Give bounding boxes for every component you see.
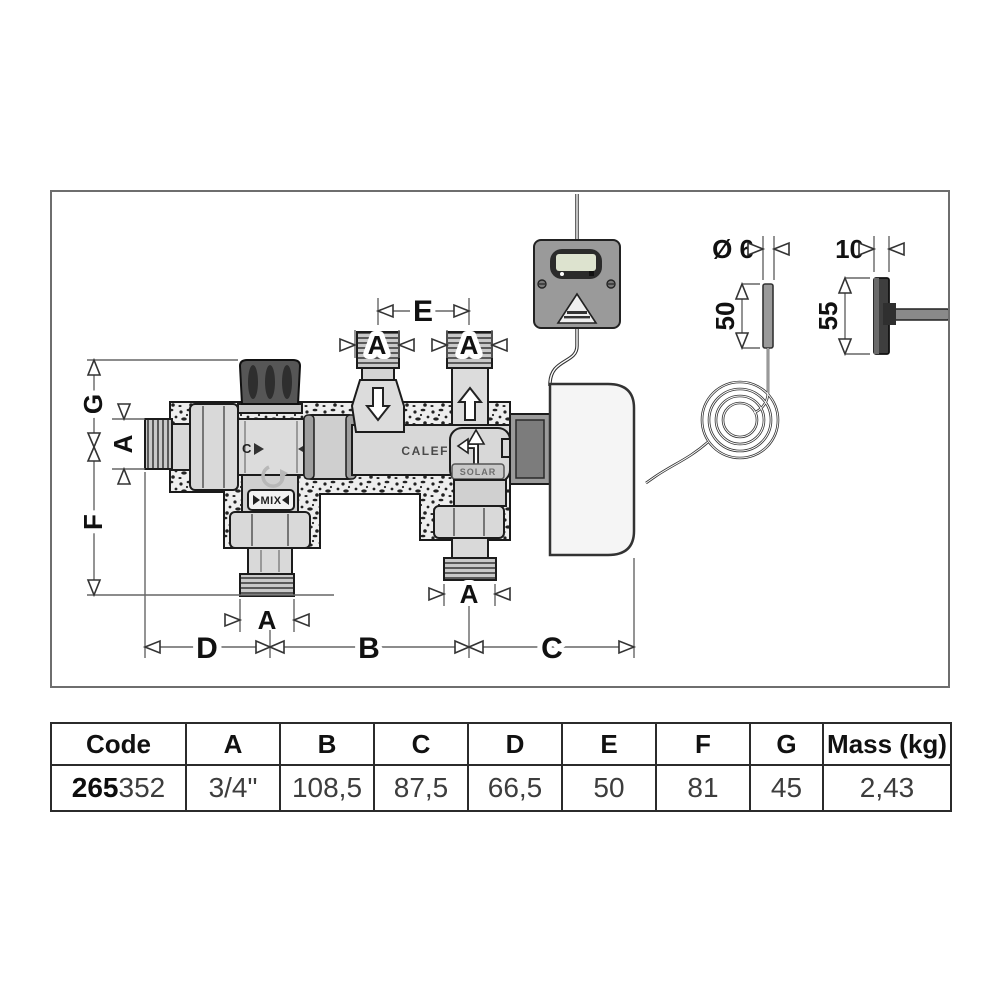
controller-box [534, 240, 620, 328]
screw-icon [607, 280, 615, 288]
col-header-code: Code [51, 723, 186, 765]
mix-badge: MIX [248, 490, 294, 510]
capillary-coil [646, 348, 778, 483]
check-valve-cartridge [304, 415, 356, 479]
mix-label: MIX [260, 495, 281, 507]
cell-e: 50 [562, 765, 656, 811]
cell-d: 66,5 [468, 765, 562, 811]
dim-D-label: D [196, 632, 218, 665]
dim-F-label: F [78, 514, 108, 530]
probe-length-label: 50 [710, 302, 740, 331]
handle-rod [889, 309, 948, 320]
table-header-row: Code A B C D E F G Mass (kg) [51, 723, 951, 765]
mixing-knob [238, 360, 302, 413]
col-header-f: F [656, 723, 750, 765]
actuator-adapter [502, 414, 550, 484]
sensor-probe-detail: Ø 6 50 [646, 234, 789, 483]
dim-G-label: G [78, 394, 108, 414]
code-prefix: 265 [72, 772, 119, 803]
dimension-table: Code A B C D E F G Mass (kg) 265352 3/4"… [50, 722, 952, 812]
cell-g: 45 [750, 765, 823, 811]
col-header-d: D [468, 723, 562, 765]
cell-a: 3/4" [186, 765, 280, 811]
left-inlet-thread [145, 419, 172, 469]
dim-A-left-label: A [108, 434, 138, 453]
sensor-probe [763, 284, 773, 348]
catalog-page: { "diagram": { "dim_labels": {"A": "A", … [0, 0, 1000, 1000]
cell-c: 87,5 [374, 765, 468, 811]
dim-A-topleft-label: A [368, 330, 387, 360]
drawing-frame: C H CALEFFI [50, 190, 950, 688]
code-suffix: 352 [119, 772, 166, 803]
left-union-nut [190, 404, 238, 490]
handle-length-label: 55 [813, 302, 843, 331]
col-header-c: C [374, 723, 468, 765]
handle-detail: 10 55 [813, 234, 948, 354]
col-header-mass: Mass (kg) [823, 723, 951, 765]
technical-drawing: C H CALEFFI [52, 192, 948, 686]
dim-A-bottomright-label: A [460, 579, 479, 609]
table-row: 265352 3/4" 108,5 87,5 66,5 50 81 45 2,4… [51, 765, 951, 811]
actuator [550, 384, 634, 555]
solar-label: SOLAR [460, 467, 497, 477]
col-header-g: G [750, 723, 823, 765]
left-tailpiece [172, 424, 190, 470]
bottom-left-outlet: MIX [230, 467, 310, 596]
dim-C-label: C [541, 632, 563, 665]
cell-f: 81 [656, 765, 750, 811]
cell-code: 265352 [51, 765, 186, 811]
dim-E-label: E [413, 295, 433, 328]
valve-assembly: C H CALEFFI [145, 332, 634, 596]
col-header-b: B [280, 723, 374, 765]
col-header-e: E [562, 723, 656, 765]
cell-mass: 2,43 [823, 765, 951, 811]
cell-b: 108,5 [280, 765, 374, 811]
cold-marker: C [242, 441, 252, 456]
dim-A-topright-label: A [460, 330, 479, 360]
screw-icon [538, 280, 546, 288]
dim-A-bottomleft-label: A [258, 605, 277, 635]
col-header-a: A [186, 723, 280, 765]
dim-B-label: B [358, 632, 380, 665]
